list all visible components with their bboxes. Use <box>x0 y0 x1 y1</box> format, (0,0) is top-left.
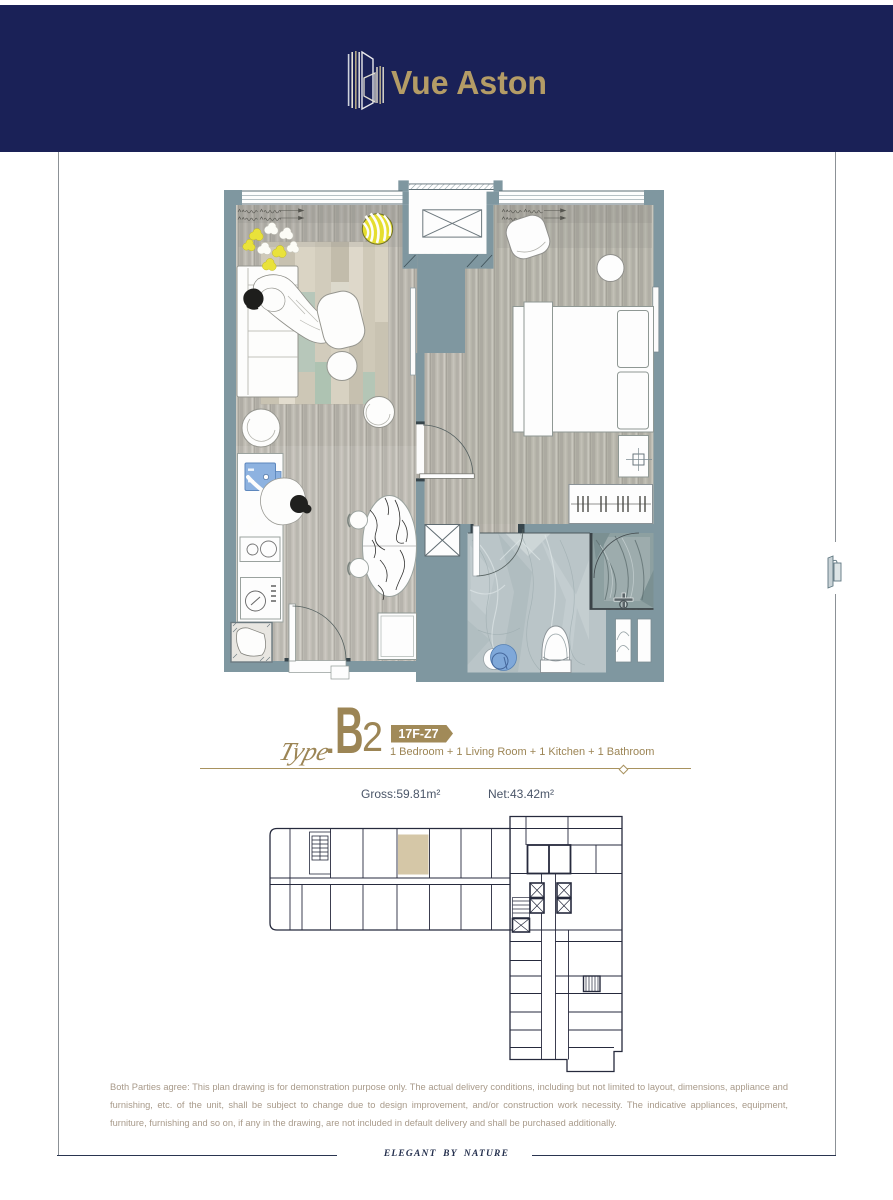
svg-text:Vue Aston: Vue Aston <box>391 64 547 101</box>
